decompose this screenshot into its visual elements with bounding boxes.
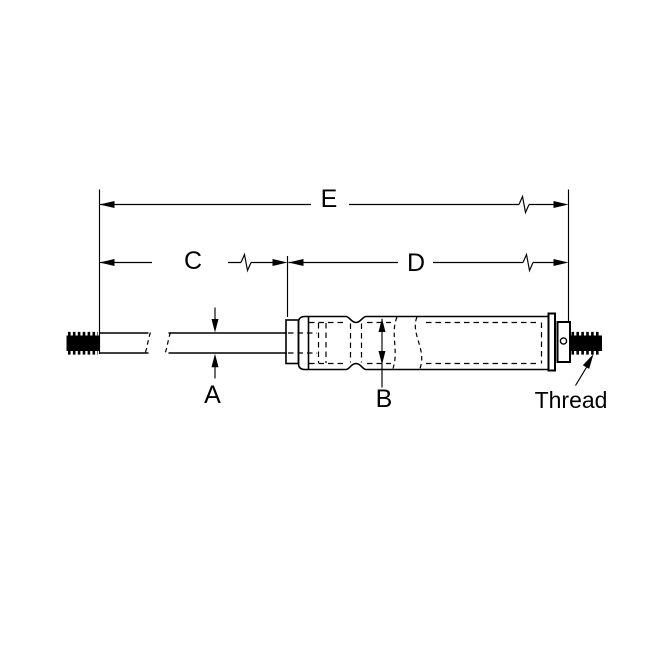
dimension-diagram: E C D A (0, 0, 670, 670)
arrowhead-c-left (100, 259, 115, 266)
thread-stud-left (67, 334, 100, 353)
cylinder-body (286, 314, 555, 371)
dimension-c-label: C (184, 247, 202, 275)
dimension-a: A (204, 308, 221, 410)
dimension-e-label: E (321, 185, 338, 213)
rod-break-right (165, 333, 171, 354)
arrowhead-b-top (379, 319, 386, 333)
drawing-canvas: E C D A (0, 0, 670, 670)
cylinder-outline (299, 317, 549, 370)
dimension-e: E (100, 185, 569, 213)
arrowhead-d-right (554, 259, 569, 266)
dimension-d-label: D (407, 249, 425, 277)
gland-collar (286, 320, 299, 364)
thread-leader-arrowhead (583, 354, 594, 369)
break-symbol-c (241, 255, 251, 271)
end-cap (549, 314, 556, 371)
break-symbol-e (519, 197, 529, 213)
bore-hidden-lines (309, 323, 540, 364)
break-symbol-d (523, 255, 533, 271)
thread-label: Thread (535, 387, 608, 413)
tube-break-curves (393, 317, 422, 369)
crimp-hidden-lines (351, 324, 362, 363)
arrowhead-a-bottom (212, 354, 219, 368)
arrowhead-c-right (273, 259, 288, 266)
dimension-a-label: A (204, 381, 221, 409)
end-fitting (558, 322, 571, 362)
thread-leader-line (576, 367, 588, 386)
arrowhead-a-top (212, 319, 219, 333)
dimension-c: C (100, 247, 288, 275)
piston-rod (100, 333, 288, 354)
arrowhead-e-right (554, 201, 569, 208)
arrowhead-b-bottom (379, 351, 386, 365)
arrowhead-d-left (289, 259, 304, 266)
dimension-b: B (376, 319, 393, 414)
rod-hidden-lines (288, 333, 317, 353)
piston-hidden-lines (319, 323, 327, 363)
extension-lines (100, 190, 569, 355)
dimension-d: D (289, 249, 569, 277)
end-fitting-hole (560, 338, 566, 344)
dimension-b-label: B (376, 385, 393, 413)
thread-stud-right (570, 334, 602, 353)
rod-break-left (145, 333, 151, 354)
arrowhead-e-left (100, 201, 115, 208)
